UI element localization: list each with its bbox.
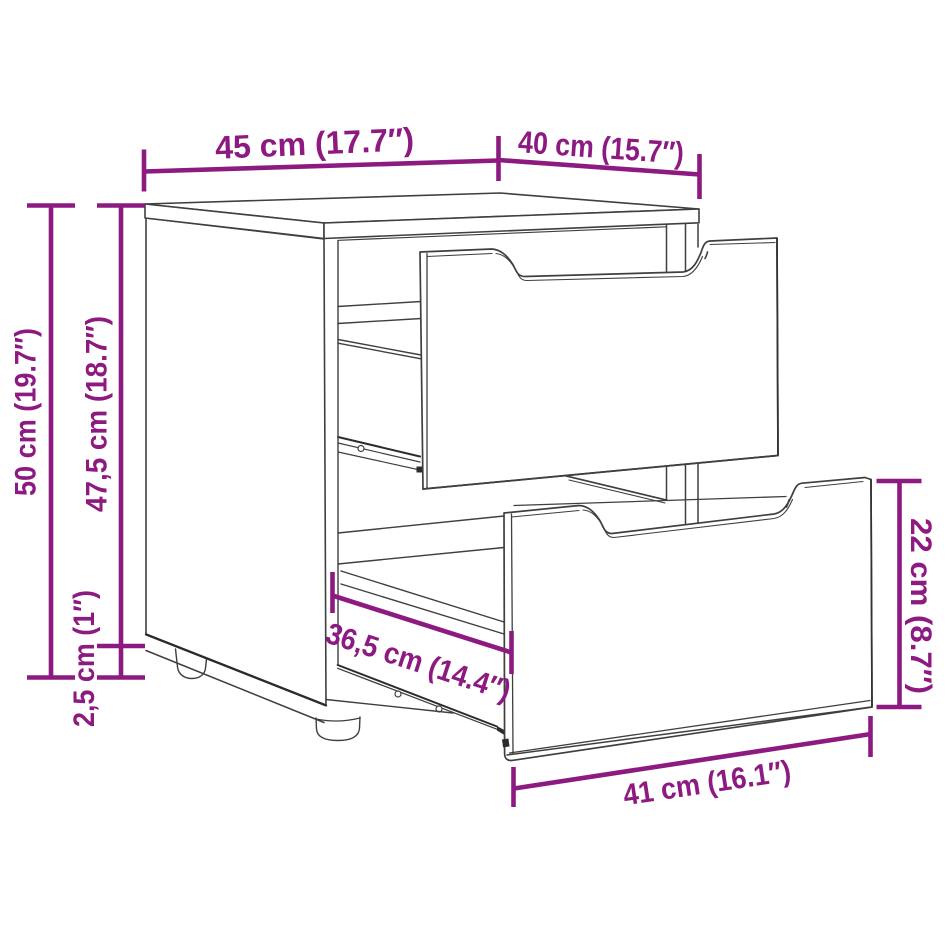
svg-text:22 cm (8.7″): 22 cm (8.7″) (904, 518, 937, 694)
svg-text:47,5 cm (18.7″): 47,5 cm (18.7″) (81, 316, 114, 512)
svg-text:50 cm (19.7″): 50 cm (19.7″) (10, 328, 43, 496)
svg-text:2,5 cm (1″): 2,5 cm (1″) (68, 590, 101, 727)
